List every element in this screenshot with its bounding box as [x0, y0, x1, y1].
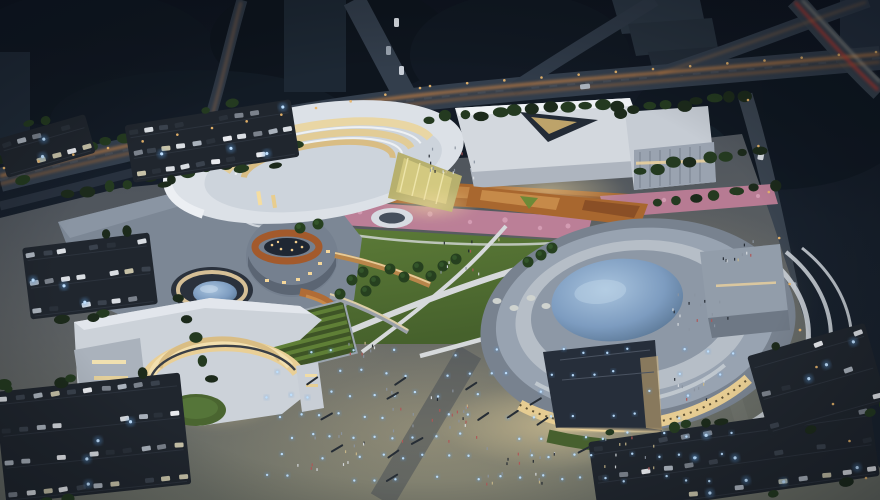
vignette-overlay [0, 0, 880, 500]
aerial-render-stage [0, 0, 880, 500]
aerial-night-render [0, 0, 880, 500]
